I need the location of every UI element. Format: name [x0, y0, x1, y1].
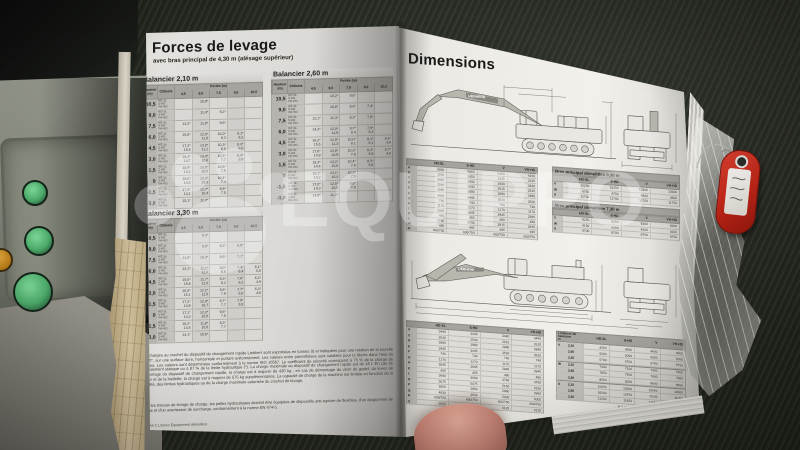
load-cell: [227, 119, 245, 129]
load-cell: 9,3* 8,2: [209, 276, 227, 286]
row-height-label: 0: [272, 171, 287, 181]
green-gauge-icon: [13, 272, 53, 312]
load-cell: [374, 168, 392, 178]
page-subtitle: avec bras principal de 4,30 m (alésage s…: [153, 55, 293, 65]
load-cell: [209, 197, 227, 207]
load-cell: [244, 196, 262, 206]
book-gutter-shadow: [395, 22, 407, 438]
load-cell: 8,1* 6,2: [227, 130, 245, 140]
load-cell: 10,5* 7,7: [209, 153, 227, 163]
row-height-label: -1,5: [272, 182, 287, 192]
load-cell: 6,1* 5,0: [244, 264, 262, 274]
load-cell: 15,0* 15,8: [174, 277, 192, 287]
load-cell: 11,7* 11,5: [192, 276, 210, 286]
load-cell: [244, 97, 262, 107]
load-cell: 6,7* 4,8: [374, 146, 392, 156]
chassis-cell: HD-SL S-HD VH-HD: [157, 176, 174, 186]
row-letter: D: [407, 180, 416, 185]
load-cell: [227, 196, 245, 206]
excavator-transport-diagram: LIEBHERR: [406, 222, 684, 337]
load-table-balancier-210: Balancier 2,10 mHauteur (m)ChâssisPortée…: [141, 73, 263, 210]
load-cell: 13,2* 10,6: [322, 159, 340, 169]
load-cell: 10,4* 7,4: [209, 175, 227, 185]
chassis-cell: HD-SL S-HD VH-HD: [157, 121, 174, 131]
load-cell: 13,0* 10,9: [322, 148, 340, 158]
load-cell: [374, 102, 392, 112]
dim-cell: 11450: [609, 397, 635, 404]
length-cell: 3,30: [567, 374, 583, 380]
load-cell: [227, 308, 245, 318]
row-letter: V: [553, 181, 562, 186]
load-cell: 11,4*: [192, 109, 210, 119]
load-cell: [209, 331, 227, 341]
chassis-cell: HD-SL S-HD VH-HD: [157, 198, 174, 208]
left-page: Forces de levage avec bras principal de …: [105, 18, 410, 443]
load-cell: [227, 185, 245, 195]
load-cell: 18,3* 14,4: [304, 159, 322, 169]
load-cell: 8,1* 6,1: [357, 136, 375, 146]
row-letter: R: [407, 393, 416, 398]
table-row: -3,0HD-SL S-HD VH-HD14,1*10,6*: [141, 330, 263, 344]
load-cell: 9,8* 7,6: [339, 180, 357, 190]
load-cell: [244, 231, 262, 241]
load-cell: [227, 330, 245, 340]
load-cell: 8,2* 5,9: [357, 147, 375, 157]
dim-cell: 11750: [621, 197, 650, 204]
row-height-label: 3,0: [272, 149, 287, 159]
load-cell: 12,5* 11,8: [192, 131, 210, 141]
load-cell: 7,4*: [357, 103, 375, 113]
load-cell: 13,1* 10,4: [322, 170, 340, 180]
load-cell: [357, 180, 375, 190]
chassis-cell: HD-SL S-HD VH-HD: [287, 127, 304, 137]
load-cell: 12,0* 11,9: [322, 126, 340, 136]
col-header: 10,5: [374, 83, 392, 90]
photo-of-open-brochure-in-cab: Forces de levage avec bras principal de …: [0, 0, 800, 450]
load-cell: 15,1*: [174, 198, 192, 208]
load-cell: [244, 330, 262, 340]
footnote-paragraph-2: Pour les travaux de levage de charge, le…: [141, 397, 393, 413]
load-cell: 17,1* 14,3: [174, 310, 192, 320]
dimension-table-lower: HD-SLS-HDVVH-HDA3440344034403440C2540254…: [406, 320, 544, 414]
load-cell: 18,6* 14,0: [174, 176, 192, 186]
corner-cell: [553, 209, 562, 215]
group-letter: [557, 354, 567, 360]
load-cell: [244, 141, 262, 151]
load-cell: 7,4* 6,4: [227, 264, 245, 274]
load-cell: [227, 231, 245, 241]
col-header: 9,0: [227, 223, 245, 230]
load-cell: [339, 191, 357, 201]
load-cell: 11,3*: [322, 115, 340, 125]
load-cell: 13,2*: [174, 121, 192, 131]
load-cell: 14,3*: [304, 126, 322, 136]
load-cell: 12,2* 11,0: [192, 287, 210, 297]
row-letter: E: [407, 344, 416, 349]
load-cell: 13,0* 11,2: [192, 142, 210, 152]
chassis-cell: HD-SL S-HD VH-HD: [287, 182, 304, 192]
col-header: 4,5: [174, 91, 192, 98]
load-cell: 10,0* 8,1: [339, 136, 357, 146]
load-cell: 17,4* 14,1: [174, 187, 192, 197]
load-cell: 17,0* 14,3: [304, 181, 322, 191]
row-letter: W: [553, 187, 562, 192]
load-cell: 10,3* 7,8: [339, 147, 357, 157]
load-cell: 7,7* 6,0: [227, 286, 245, 296]
col-header: 10,5: [244, 89, 262, 96]
dim-cell: 6050: [416, 399, 448, 406]
load-cell: 10,4* 7,6: [339, 158, 357, 168]
load-cell: [244, 242, 262, 252]
load-cell: 13,5* 10,5: [192, 164, 210, 174]
length-cell: 2,60: [567, 388, 583, 394]
load-cell: 9,2*: [209, 109, 227, 119]
row-height-label: 9,0: [272, 105, 287, 115]
col-header: Châssis: [157, 85, 174, 98]
load-cell: 9,6* 7,6: [209, 309, 227, 319]
load-cell: 6,3* 4,8: [244, 286, 262, 296]
chassis-cell: HD-SL S-HD VH-HD: [157, 143, 174, 153]
chassis-cell: HD-SL S-HD VH-HD: [157, 110, 174, 120]
load-cell: [357, 169, 375, 179]
load-cell: 8,2*: [209, 243, 227, 253]
load-cell: 7,8* 5,9: [227, 297, 245, 307]
chassis-cell: HD-SL S-HD VH-HD: [157, 233, 174, 243]
row-letter: G: [407, 196, 416, 201]
dim-cell: 11200: [583, 395, 609, 402]
load-cell: 12,3* 10,5: [192, 309, 210, 319]
load-cell: [244, 163, 262, 173]
dim-cell: 11750: [650, 199, 679, 206]
chassis-cell: HD-SL S-HD VH-HD: [157, 154, 174, 164]
load-cell: [227, 174, 245, 184]
load-cell: 10,3* 8,0: [209, 142, 227, 152]
load-cell: 12,6* 11,3: [322, 137, 340, 147]
load-cell: 7,1*: [227, 253, 245, 263]
load-cell: [244, 297, 262, 307]
load-cell: [374, 157, 392, 167]
col-header: 7,5: [339, 84, 357, 91]
load-cell: 8,3* 6,0: [227, 141, 245, 151]
length-cell: 2,10: [567, 342, 583, 348]
load-cell: 8,6*: [209, 254, 227, 264]
row-letter: Q: [407, 388, 416, 393]
key-tag-label: [724, 168, 752, 216]
load-cell: [244, 253, 262, 263]
load-cell: 18,9* 14,2: [174, 165, 192, 175]
row-letter: E: [407, 186, 416, 191]
group-letter: X: [557, 381, 567, 387]
corner-cell: [407, 321, 416, 327]
load-cell: [244, 185, 262, 195]
load-cell: 11,8* 10,6: [192, 320, 210, 330]
row-letter: C: [407, 175, 416, 180]
dim-cell: 6125: [511, 406, 543, 413]
load-cell: [304, 93, 322, 103]
corner-cell: [407, 159, 416, 165]
load-cell: 12,7* 10,4: [192, 186, 210, 196]
row-letter: P: [407, 382, 416, 387]
row-letter: F: [407, 349, 416, 354]
load-cell: [174, 233, 192, 243]
chassis-cell: HD-SL S-HD VH-HD: [287, 94, 304, 104]
load-cell: [374, 91, 392, 101]
group-letter: [557, 393, 567, 399]
load-cell: [357, 191, 375, 201]
load-cell: 8,6*: [339, 92, 357, 102]
load-cell: 9,6* 7,9: [209, 287, 227, 297]
group-letter: V: [557, 342, 567, 348]
load-cell: 9,7* 8,4: [339, 125, 357, 135]
load-cell: 9,9* 7,5: [209, 186, 227, 196]
load-cell: 10,8*: [322, 104, 340, 114]
load-cell: [227, 97, 245, 107]
load-cell: [357, 92, 375, 102]
balancier-length-table: Longueur de balancier mHD-SLS-HDVVH-HDV2…: [556, 331, 686, 409]
load-cell: 14,1*: [174, 332, 192, 342]
load-cell: [227, 319, 245, 329]
row-height-label: 1,5: [272, 160, 287, 170]
load-cell: [374, 124, 392, 134]
length-cell: 3,30: [567, 355, 583, 361]
length-cell: 2,10: [567, 382, 583, 388]
load-cell: [244, 308, 262, 318]
load-cell: [244, 119, 262, 129]
col-header: 4,5: [304, 85, 322, 92]
load-cell: 10,6* 7,5: [209, 164, 227, 174]
load-cell: 6,6* 4,9: [374, 135, 392, 145]
length-cell: 2,60: [567, 349, 583, 355]
chassis-cell: HD-SL S-HD VH-HD: [157, 288, 174, 298]
load-cell: [227, 108, 245, 118]
load-cell: 10,2*: [322, 93, 340, 103]
load-cell: [374, 113, 392, 123]
row-letter: B: [407, 170, 416, 175]
load-cell: [244, 319, 262, 329]
right-page: Dimensions: [388, 20, 706, 445]
corner-cell: [553, 175, 562, 181]
row-height-label: 6,0: [272, 127, 287, 137]
col-header: 6,0: [192, 90, 210, 97]
row-letter: N: [407, 377, 416, 382]
row-letter: K: [407, 211, 416, 216]
load-cell: [174, 244, 192, 254]
load-cell: 9,7* 7,7: [209, 298, 227, 308]
load-table-balancier-260: Balancier 2,60 mHauteur (m)ChâssisPortée…: [271, 67, 393, 204]
load-cell: 9,2* 7,7: [209, 320, 227, 330]
load-cell: 18,4* 14,7: [174, 154, 192, 164]
load-cell: 10,0* 8,3: [209, 131, 227, 141]
chassis-cell: HD-SL S-HD VH-HD: [287, 105, 304, 115]
red-key-tag: [714, 148, 763, 236]
chassis-cell: HD-SL S-HD VH-HD: [157, 321, 174, 331]
dim-cell: 11700: [562, 193, 591, 200]
row-letter: F: [407, 191, 416, 196]
col-header: 6,0: [322, 85, 340, 92]
load-cell: [374, 179, 392, 189]
chassis-cell: HD-SL S-HD VH-HD: [287, 138, 304, 148]
load-cell: [374, 190, 392, 200]
load-cell: 9,0* 8,6: [209, 265, 227, 275]
load-cell: 17,2* 14,6: [174, 299, 192, 309]
row-letter: I: [407, 206, 416, 211]
footnote-paragraph: Les charges au crochet du dispositif de …: [141, 347, 393, 387]
group-letter: W: [557, 361, 567, 367]
group-letter: [557, 387, 567, 393]
load-cell: 7,6*: [357, 114, 375, 124]
load-cell: [227, 163, 245, 173]
load-cell: 8,4* 5,9: [227, 152, 245, 162]
chassis-cell: HD-SL S-HD VH-HD: [287, 149, 304, 159]
row-letter: A: [407, 165, 416, 170]
row-letter: W: [553, 221, 562, 226]
row-letter: L: [407, 371, 416, 376]
col-header: 7,5: [209, 224, 227, 231]
row-letter: G: [407, 355, 416, 360]
chassis-cell: HD-SL S-HD VH-HD: [287, 171, 304, 181]
load-cell: 16,2* 14,4: [174, 321, 192, 331]
load-cell: 10,6*: [192, 331, 210, 341]
length-cell: 2,10: [567, 362, 583, 368]
row-letter: X: [553, 193, 562, 198]
length-cell: 2,60: [567, 368, 583, 374]
dim-cell: 11700: [591, 195, 620, 202]
load-cell: [244, 174, 262, 184]
load-cell: 17,6* 14,9: [304, 148, 322, 158]
load-cell: 12,1*: [304, 115, 322, 125]
load-cell: 18,1* 14,2: [304, 170, 322, 180]
chassis-cell: HD-SL S-HD VH-HD: [157, 277, 174, 287]
load-cell: [174, 110, 192, 120]
green-button-icon: [22, 180, 48, 206]
page-footer: 4 R 944 C Litronic Équipement démolition: [141, 422, 207, 428]
load-cell: 16,4* 15,1: [174, 288, 192, 298]
row-letter: H: [407, 201, 416, 206]
load-cell: 7,9* 6,3: [357, 125, 375, 135]
col-header: 10,5: [244, 223, 262, 230]
load-cell: 6,2* 4,9: [244, 275, 262, 285]
load-cell: 17,3* 15,4: [174, 143, 192, 153]
load-cell: 12,4* 10,7: [192, 298, 210, 308]
load-table-balancier-330: Balancier 3,30 mHauteur (m)ChâssisPortée…: [141, 207, 263, 344]
col-header: 9,0: [357, 84, 375, 91]
load-cell: 13,3* 10,3: [192, 175, 210, 185]
row-height-label: -3,0: [272, 193, 287, 203]
load-cell: 9,4*: [192, 232, 210, 242]
load-cell: 11,4*: [192, 197, 210, 207]
col-header: 4,5: [174, 225, 192, 232]
row-height-label: 10,5: [272, 94, 287, 104]
load-cell: [304, 104, 322, 114]
row-letter: V: [553, 215, 562, 220]
key-tag-hole: [735, 155, 749, 169]
green-button-icon: [24, 226, 54, 256]
col-header: Hauteur (m): [272, 80, 287, 93]
load-cell: 16,2* 15,6: [304, 137, 322, 147]
row-letter: C: [407, 333, 416, 338]
load-cell: [209, 98, 227, 108]
load-cell: 8,9*: [339, 103, 357, 113]
row-letter: D: [407, 338, 416, 343]
chassis-cell: HD-SL S-HD VH-HD: [157, 99, 174, 109]
load-cell: 10,3* 7,5: [339, 169, 357, 179]
row-letter: S: [407, 399, 416, 404]
page-title: Dimensions: [408, 50, 495, 73]
load-cell: 6,9*: [227, 242, 245, 252]
chassis-cell: HD-SL S-HD VH-HD: [157, 332, 174, 342]
col-header: Châssis: [157, 219, 174, 232]
load-cell: [244, 152, 262, 162]
load-cell: 11,2*: [322, 192, 340, 202]
col-header: 9,0: [227, 89, 245, 96]
col-header: 7,5: [209, 90, 227, 97]
load-cell: [209, 232, 227, 242]
load-cell: 10,9*: [192, 98, 210, 108]
chassis-cell: HD-SL S-HD VH-HD: [157, 299, 174, 309]
chassis-cell: HD-SL S-HD VH-HD: [157, 165, 174, 175]
load-cell: 9,6*: [209, 120, 227, 130]
group-letter: [557, 374, 567, 380]
chassis-cell: HD-SL S-HD VH-HD: [287, 193, 304, 203]
chassis-cell: HD-SL S-HD VH-HD: [157, 244, 174, 254]
load-cell: 9,3*: [339, 114, 357, 124]
page-title: Forces de levage: [152, 36, 277, 56]
load-cell: 10,4*: [192, 254, 210, 264]
chassis-cell: HD-SL S-HD VH-HD: [157, 255, 174, 265]
chassis-cell: HD-SL S-HD VH-HD: [157, 187, 174, 197]
chassis-cell: HD-SL S-HD VH-HD: [287, 116, 304, 126]
row-height-label: 7,5: [272, 116, 287, 126]
row-letter: X: [553, 227, 562, 232]
load-cell: 14,8*: [304, 192, 322, 202]
load-cell: 15,6*: [174, 132, 192, 142]
load-cell: 11,1* 12,0: [192, 265, 210, 275]
load-cell: 9,9*: [192, 243, 210, 253]
load-cell: [174, 99, 192, 109]
row-height-label: 4,5: [272, 138, 287, 148]
load-cell: 8,3* 5,8: [357, 158, 375, 168]
chassis-cell: HD-SL S-HD VH-HD: [287, 160, 304, 170]
row-letter: H: [407, 360, 416, 365]
chassis-cell: HD-SL S-HD VH-HD: [157, 266, 174, 276]
load-cell: 12,5* 10,5: [322, 181, 340, 191]
load-cell: [244, 130, 262, 140]
col-header: 6,0: [192, 224, 210, 231]
table-row: -3,0HD-SL S-HD VH-HD14,8*11,2*: [271, 190, 393, 204]
row-letter: K: [407, 366, 416, 371]
row-letter: A: [407, 327, 416, 332]
col-header: Châssis: [287, 80, 304, 93]
load-cell: 11,0*: [174, 255, 192, 265]
load-cell: 7,6* 6,2: [227, 275, 245, 285]
chassis-cell: HD-SL S-HD VH-HD: [157, 310, 174, 320]
load-cell: 11,9*: [192, 120, 210, 130]
load-cell: 13,1*: [174, 266, 192, 276]
load-cell: 13,4* 10,8: [192, 153, 210, 163]
length-cell: 3,30: [567, 394, 583, 400]
row-letter: L: [407, 216, 416, 221]
load-cell: [244, 108, 262, 118]
chassis-cell: HD-SL S-HD VH-HD: [157, 132, 174, 142]
group-letter: [557, 348, 567, 354]
group-letter: [557, 367, 567, 373]
